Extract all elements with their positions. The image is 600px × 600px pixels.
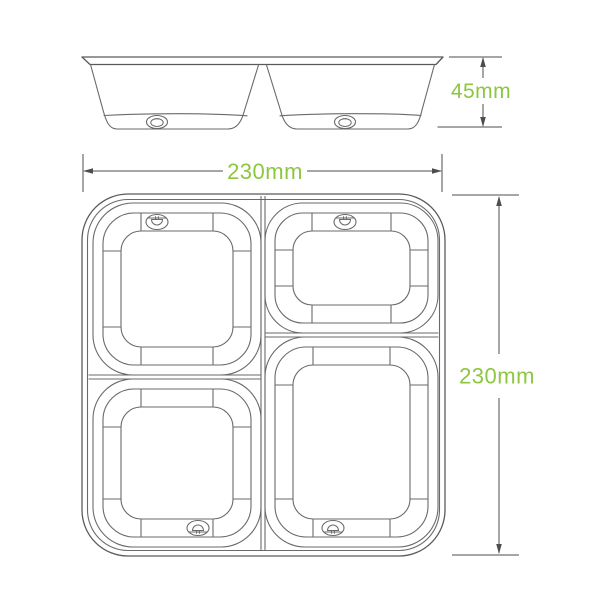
arrow-right-icon	[432, 168, 442, 174]
side-rim-flange	[82, 57, 443, 65]
dimension-side-height: 45mm	[438, 57, 512, 127]
compartment-outer	[265, 337, 438, 547]
compartment-band-outer	[103, 389, 251, 537]
corner-ticks	[103, 389, 251, 537]
side-left-cavity	[91, 65, 259, 130]
packaging-dimension-diagram: 45mm 230mm 230mm	[0, 0, 600, 600]
compartment-bottom-right	[265, 337, 438, 547]
base-tab-icon	[147, 116, 168, 129]
corner-ticks	[275, 347, 428, 537]
arrow-down-icon	[496, 544, 502, 554]
compartment-outer	[93, 203, 261, 375]
side-view	[82, 57, 443, 129]
compartment-outer	[93, 379, 261, 547]
pull-tab-icon	[322, 521, 344, 536]
arrow-up-icon	[496, 196, 502, 206]
compartment-top-right	[265, 203, 438, 333]
side-right-base-line	[280, 114, 421, 116]
plan-view	[82, 194, 445, 556]
dimension-plan-width: 230mm	[83, 154, 442, 192]
arrow-up-icon	[480, 57, 486, 67]
compartment-band-inner	[293, 231, 410, 305]
compartment-band-outer	[103, 213, 251, 365]
dimension-diagram-canvas: 45mm 230mm 230mm	[0, 0, 600, 600]
compartment-band-outer	[275, 347, 428, 537]
compartment-bottom-left	[93, 379, 261, 547]
divider-vertical	[261, 197, 265, 550]
divider-horizontal-left	[89, 375, 261, 379]
arrow-down-icon	[480, 117, 486, 127]
divider-horizontal-right	[265, 333, 438, 337]
pull-tab-icon	[187, 521, 209, 536]
arrow-left-icon	[83, 168, 93, 174]
base-tab-icon	[335, 116, 356, 129]
dimension-label-height-230mm: 230mm	[459, 364, 535, 389]
compartment-band-inner	[293, 365, 410, 519]
pull-tab-icon	[146, 215, 168, 230]
compartment-band-inner	[121, 407, 233, 519]
compartment-band-outer	[275, 213, 428, 323]
side-left-base-line	[104, 114, 247, 116]
dimension-plan-height: 230mm	[452, 195, 535, 555]
pull-tab-icon	[334, 215, 356, 230]
dimension-label-width-230mm: 230mm	[227, 159, 303, 184]
compartment-top-left	[93, 203, 261, 375]
corner-ticks	[103, 213, 251, 365]
corner-ticks	[275, 213, 428, 323]
dimension-label-45mm: 45mm	[451, 80, 511, 103]
compartment-band-inner	[121, 231, 233, 347]
